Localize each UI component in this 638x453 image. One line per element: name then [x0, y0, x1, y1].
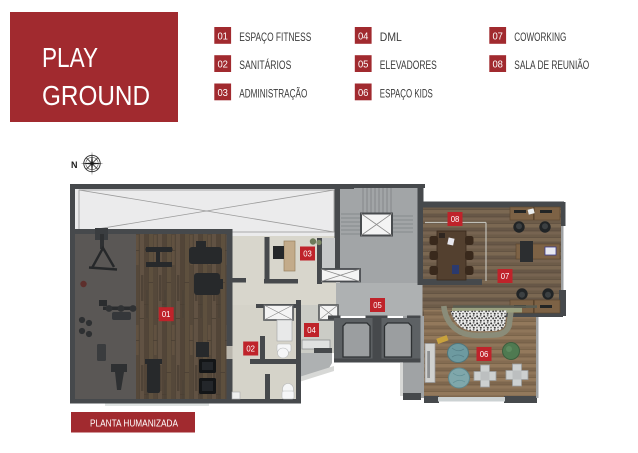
- svg-text:07: 07: [501, 272, 510, 281]
- svg-text:05: 05: [373, 301, 382, 310]
- svg-text:04: 04: [307, 326, 316, 335]
- svg-text:03: 03: [217, 87, 228, 99]
- svg-text:04: 04: [358, 30, 369, 42]
- svg-text:07: 07: [492, 30, 503, 42]
- svg-text:N: N: [71, 160, 78, 170]
- svg-text:08: 08: [492, 59, 503, 71]
- svg-text:01: 01: [162, 310, 171, 319]
- svg-text:ADMINISTRAÇÃO: ADMINISTRAÇÃO: [239, 87, 307, 101]
- svg-text:ELEVADORES: ELEVADORES: [380, 58, 437, 72]
- svg-text:ESPAÇO KIDS: ESPAÇO KIDS: [380, 87, 433, 101]
- svg-text:02: 02: [246, 344, 255, 353]
- svg-text:PLAY: PLAY: [42, 42, 98, 73]
- svg-text:GROUND: GROUND: [42, 80, 150, 111]
- svg-text:SANITÁRIOS: SANITÁRIOS: [239, 57, 291, 72]
- svg-text:ESPAÇO FITNESS: ESPAÇO FITNESS: [239, 30, 311, 44]
- svg-text:05: 05: [358, 59, 369, 71]
- svg-text:08: 08: [451, 215, 460, 224]
- svg-text:06: 06: [358, 87, 369, 99]
- svg-text:COWORKING: COWORKING: [514, 30, 566, 44]
- svg-text:01: 01: [217, 30, 228, 42]
- svg-text:02: 02: [217, 59, 228, 71]
- svg-text:PLANTA HUMANIZADA: PLANTA HUMANIZADA: [90, 418, 178, 430]
- svg-text:DML: DML: [380, 30, 402, 44]
- svg-text:03: 03: [303, 249, 312, 258]
- svg-text:06: 06: [480, 350, 489, 359]
- svg-text:SALA DE REUNIÃO: SALA DE REUNIÃO: [514, 58, 589, 72]
